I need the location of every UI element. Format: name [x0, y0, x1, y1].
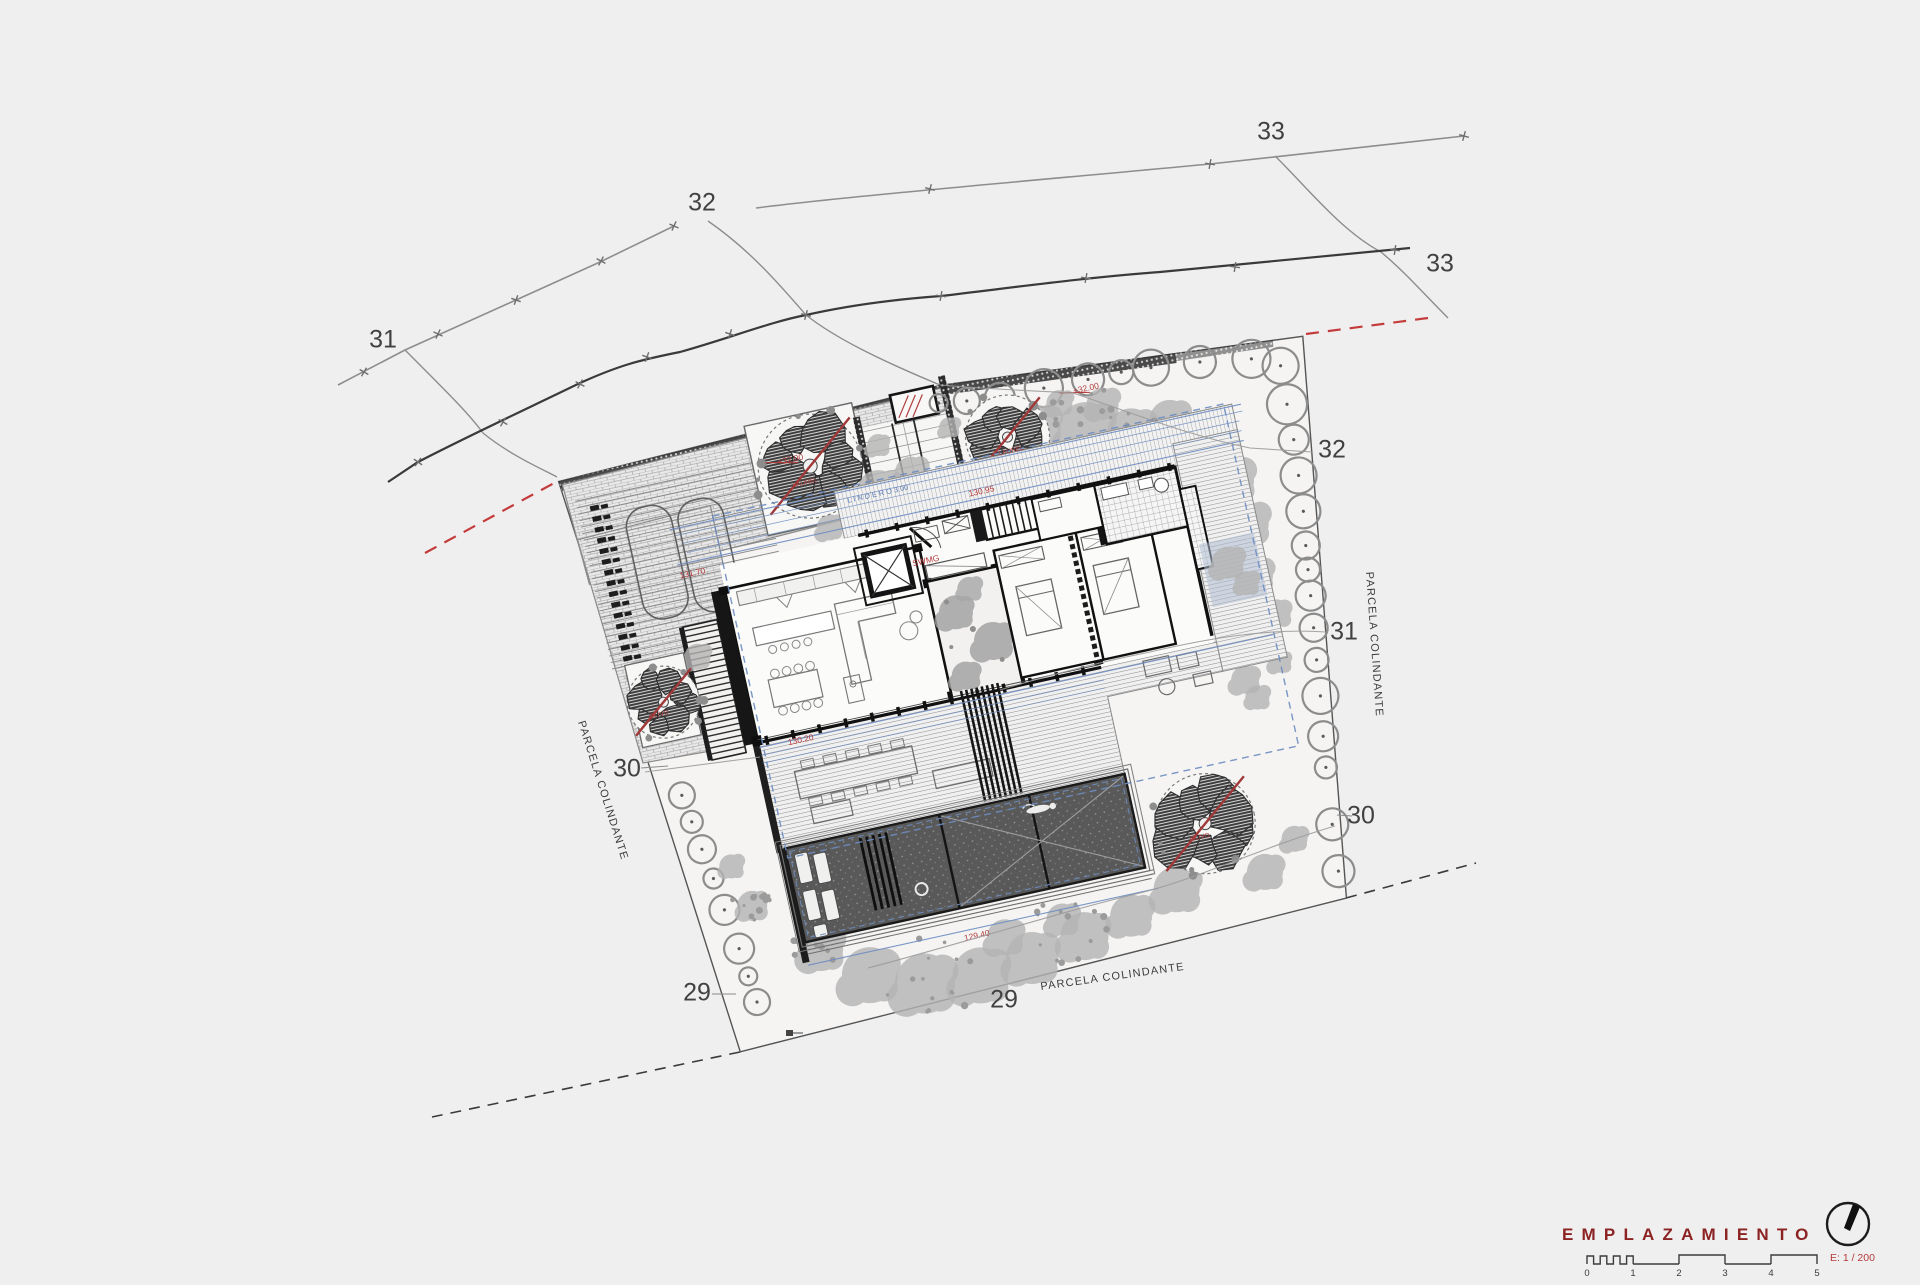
svg-text:4: 4: [1768, 1268, 1773, 1279]
svg-text:EMPLAZAMIENTO: EMPLAZAMIENTO: [1562, 1225, 1817, 1244]
svg-text:2: 2: [1676, 1268, 1681, 1279]
svg-text:1: 1: [1630, 1268, 1635, 1279]
svg-text:30: 30: [613, 755, 641, 783]
svg-text:29: 29: [990, 986, 1018, 1014]
svg-text:0: 0: [1584, 1268, 1589, 1279]
svg-text:3: 3: [1722, 1268, 1727, 1279]
svg-text:33: 33: [1257, 118, 1285, 146]
svg-text:31: 31: [1330, 618, 1358, 646]
svg-text:29: 29: [683, 979, 711, 1007]
svg-text:E: 1 / 200: E: 1 / 200: [1830, 1252, 1875, 1264]
svg-text:32: 32: [1318, 436, 1346, 464]
svg-text:5: 5: [1814, 1268, 1819, 1279]
svg-text:31: 31: [369, 326, 397, 354]
svg-text:32: 32: [688, 189, 716, 217]
svg-text:33: 33: [1426, 250, 1454, 278]
